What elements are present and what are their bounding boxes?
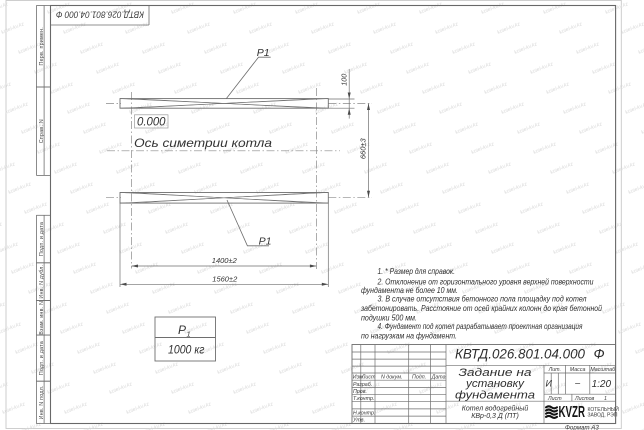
svg-text:1: 1	[187, 330, 191, 339]
svg-text:КВр-0,3 Д (ПТ): КВр-0,3 Д (ПТ)	[471, 413, 519, 420]
svg-text:Ф: Ф	[594, 346, 605, 362]
svg-text:ЗАВОД, РЭП: ЗАВОД, РЭП	[588, 412, 618, 418]
svg-text:P1: P1	[257, 47, 270, 59]
svg-text:Взам. инв. N: Взам. инв. N	[39, 301, 45, 335]
svg-text:Листов: Листов	[574, 396, 595, 402]
svg-text:Лист: Лист	[361, 375, 376, 381]
svg-text:Инв. N дубл.: Инв. N дубл.	[39, 265, 45, 299]
svg-text:–: –	[574, 378, 581, 388]
svg-text:Н.контр.: Н.контр.	[353, 411, 375, 417]
svg-text:660±3: 660±3	[359, 137, 368, 159]
svg-text:0.000: 0.000	[137, 115, 166, 129]
svg-text:1560±2: 1560±2	[212, 275, 238, 284]
svg-text:Лист: Лист	[547, 396, 562, 402]
svg-text:Масштаб: Масштаб	[590, 367, 616, 373]
svg-text:фундамента: фундамента	[455, 389, 535, 401]
svg-text:N докум.: N докум.	[381, 375, 402, 381]
svg-text:установку: установку	[465, 378, 525, 390]
svg-text:И: И	[546, 379, 553, 389]
svg-text:Котел водогрейный: Котел водогрейный	[462, 404, 529, 412]
svg-text:P1: P1	[259, 236, 272, 248]
svg-text:Формат А3: Формат А3	[565, 424, 599, 430]
svg-text:по нагрузкам на фундамент.: по нагрузкам на фундамент.	[361, 331, 457, 340]
svg-text:Задание на: Задание на	[459, 367, 532, 379]
svg-text:1: 1	[604, 396, 607, 402]
svg-text:KVZR: KVZR	[559, 404, 586, 421]
svg-text:забетонировать. Расстояние от: забетонировать. Расстояние от осей крайн…	[360, 304, 602, 313]
svg-text:1400±2: 1400±2	[212, 256, 238, 265]
svg-text:Перв. примен.: Перв. примен.	[39, 27, 45, 65]
svg-text:3. В случае отсутствия бетонн: 3. В случае отсутствия бетонного пола пл…	[378, 294, 587, 303]
svg-text:1. * Размер для справок.: 1. * Размер для справок.	[378, 267, 456, 276]
svg-text:P: P	[178, 323, 186, 337]
svg-text:Подп. и дата: Подп. и дата	[39, 341, 45, 375]
svg-text:Подп. и дата: Подп. и дата	[39, 222, 45, 256]
svg-text:1000 кг: 1000 кг	[168, 343, 205, 357]
svg-text:Подп.: Подп.	[412, 375, 426, 381]
svg-text:4. Фундамент под котел разраб: 4. Фундамент под котел разрабатывает про…	[378, 322, 583, 331]
svg-text:Пров.: Пров.	[353, 389, 367, 395]
svg-text:Лит.: Лит.	[548, 367, 561, 373]
svg-text:100: 100	[339, 74, 348, 86]
svg-text:1:20: 1:20	[592, 379, 612, 390]
svg-text:КВТД.026.801.04.000 Ф: КВТД.026.801.04.000 Ф	[56, 8, 144, 19]
svg-text:Т.контр.: Т.контр.	[353, 396, 374, 402]
svg-text:Справ. N: Справ. N	[39, 119, 45, 143]
svg-text:Дата: Дата	[431, 375, 446, 381]
svg-text:Масса: Масса	[570, 367, 586, 373]
svg-text:КВТД.026.801.04.000: КВТД.026.801.04.000	[455, 346, 585, 362]
svg-text:Разраб.: Разраб.	[353, 382, 372, 388]
svg-text:Утв.: Утв.	[353, 418, 365, 424]
svg-text:Ось симетрии котла: Ось симетрии котла	[134, 136, 272, 150]
svg-text:Инв. N подл.: Инв. N подл.	[39, 385, 45, 419]
